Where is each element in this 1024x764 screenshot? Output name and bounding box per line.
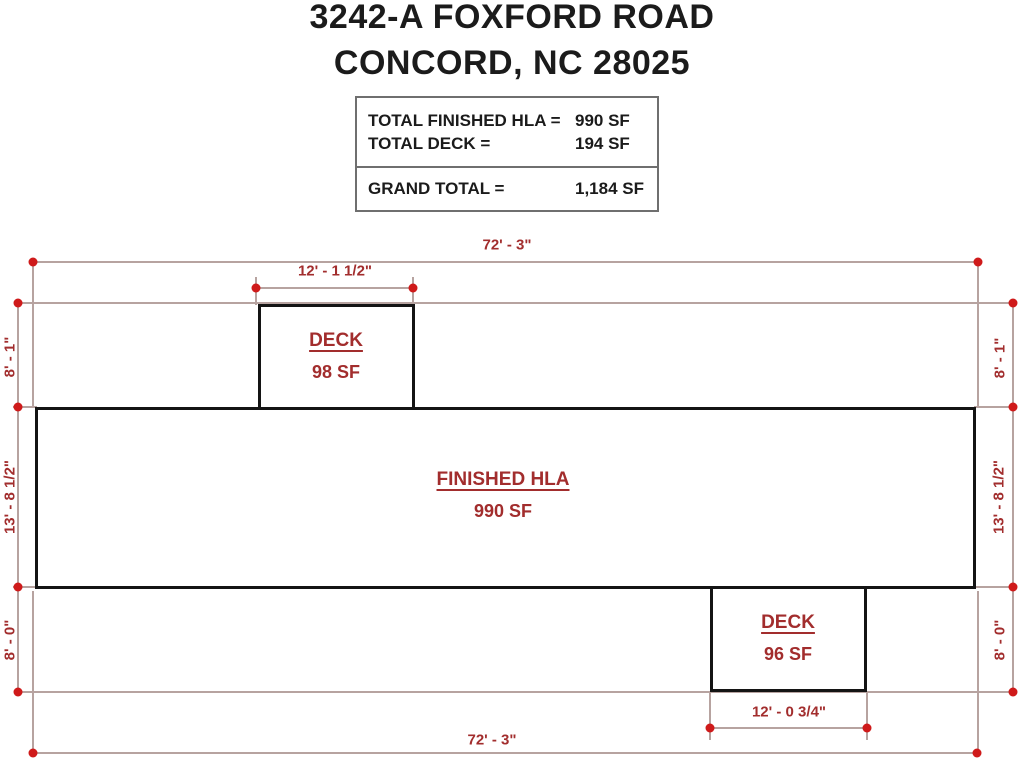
dimension-dot <box>1009 403 1018 412</box>
dimension-dot <box>14 688 23 697</box>
ext-line-bottom-right <box>977 591 979 757</box>
dimension-dot <box>863 724 872 733</box>
summary-label: TOTAL FINISHED HLA = <box>368 111 561 130</box>
summary-value: 990 SF <box>575 111 630 131</box>
bottom-deck-name: DECK <box>761 612 815 634</box>
dim-text-bottom-deck-width: 12' - 0 3/4" <box>752 704 826 721</box>
dim-line-top-deck <box>256 287 414 289</box>
ext-line-bottom-left <box>32 591 34 757</box>
dimension-dot <box>1009 583 1018 592</box>
dim-line-right-vertical <box>1012 303 1014 692</box>
dim-line-bottom-width <box>33 752 977 754</box>
dimension-dot <box>252 284 261 293</box>
top-deck-sf: 98 SF <box>312 362 360 382</box>
bottom-deck-sf: 96 SF <box>764 644 812 664</box>
tick-bottom-deck-left <box>709 692 711 740</box>
top-deck-label: DECK 98 SF <box>309 330 363 383</box>
dim-line-bottom-deck <box>710 727 867 729</box>
bottom-deck-label: DECK 96 SF <box>761 612 815 665</box>
summary-row-finished-hla: TOTAL FINISHED HLA = 990 SF <box>357 111 657 131</box>
floor-plan-page: 3242-A FOXFORD ROAD CONCORD, NC 28025 TO… <box>0 0 1024 764</box>
dimension-dot <box>29 749 38 758</box>
summary-row-grand-total: GRAND TOTAL = 1,184 SF <box>357 179 657 199</box>
finished-hla-sf: 990 SF <box>474 501 532 521</box>
page-title-address: 3242-A FOXFORD ROAD <box>0 0 1024 37</box>
dim-text-left-top: 8' - 1" <box>2 337 19 378</box>
dimension-dot <box>706 724 715 733</box>
dimension-dot <box>1009 299 1018 308</box>
dimension-dot <box>1009 688 1018 697</box>
dim-text-bottom-width: 72' - 3" <box>467 732 516 749</box>
dimension-dot <box>409 284 418 293</box>
summary-value: 1,184 SF <box>575 179 644 199</box>
dimension-dot <box>973 749 982 758</box>
dimension-dot <box>14 403 23 412</box>
dim-text-right-middle: 13' - 8 1/2" <box>991 460 1008 534</box>
tick-bottom-deck-right <box>866 692 868 740</box>
dim-text-top-width: 72' - 3" <box>482 237 531 254</box>
summary-value: 194 SF <box>575 134 630 154</box>
dimension-dot <box>14 299 23 308</box>
dim-text-top-deck-width: 12' - 1 1/2" <box>298 263 372 280</box>
top-deck-name: DECK <box>309 330 363 352</box>
ext-line-top-right <box>977 262 979 408</box>
dim-text-right-bottom: 8' - 0" <box>992 620 1009 661</box>
summary-subtotals-section: TOTAL FINISHED HLA = 990 SF TOTAL DECK =… <box>357 98 657 168</box>
summary-label: GRAND TOTAL = <box>368 179 504 198</box>
dim-line-top-width <box>33 261 978 263</box>
dim-line-level-top <box>18 302 1014 304</box>
summary-grand-total-section: GRAND TOTAL = 1,184 SF <box>357 168 657 210</box>
finished-hla-name: FINISHED HLA <box>437 469 570 491</box>
summary-row-deck: TOTAL DECK = 194 SF <box>357 134 657 154</box>
summary-label: TOTAL DECK = <box>368 134 490 153</box>
dim-text-left-middle: 13' - 8 1/2" <box>2 460 19 534</box>
ext-line-top-left <box>32 262 34 408</box>
dimension-dot <box>29 258 38 267</box>
dimension-dot <box>14 583 23 592</box>
finished-hla-label: FINISHED HLA 990 SF <box>437 469 570 522</box>
area-summary-table: TOTAL FINISHED HLA = 990 SF TOTAL DECK =… <box>355 96 659 212</box>
page-title-city: CONCORD, NC 28025 <box>0 44 1024 83</box>
dimension-dot <box>974 258 983 267</box>
dim-text-left-bottom: 8' - 0" <box>2 620 19 661</box>
dim-text-right-top: 8' - 1" <box>992 338 1009 379</box>
